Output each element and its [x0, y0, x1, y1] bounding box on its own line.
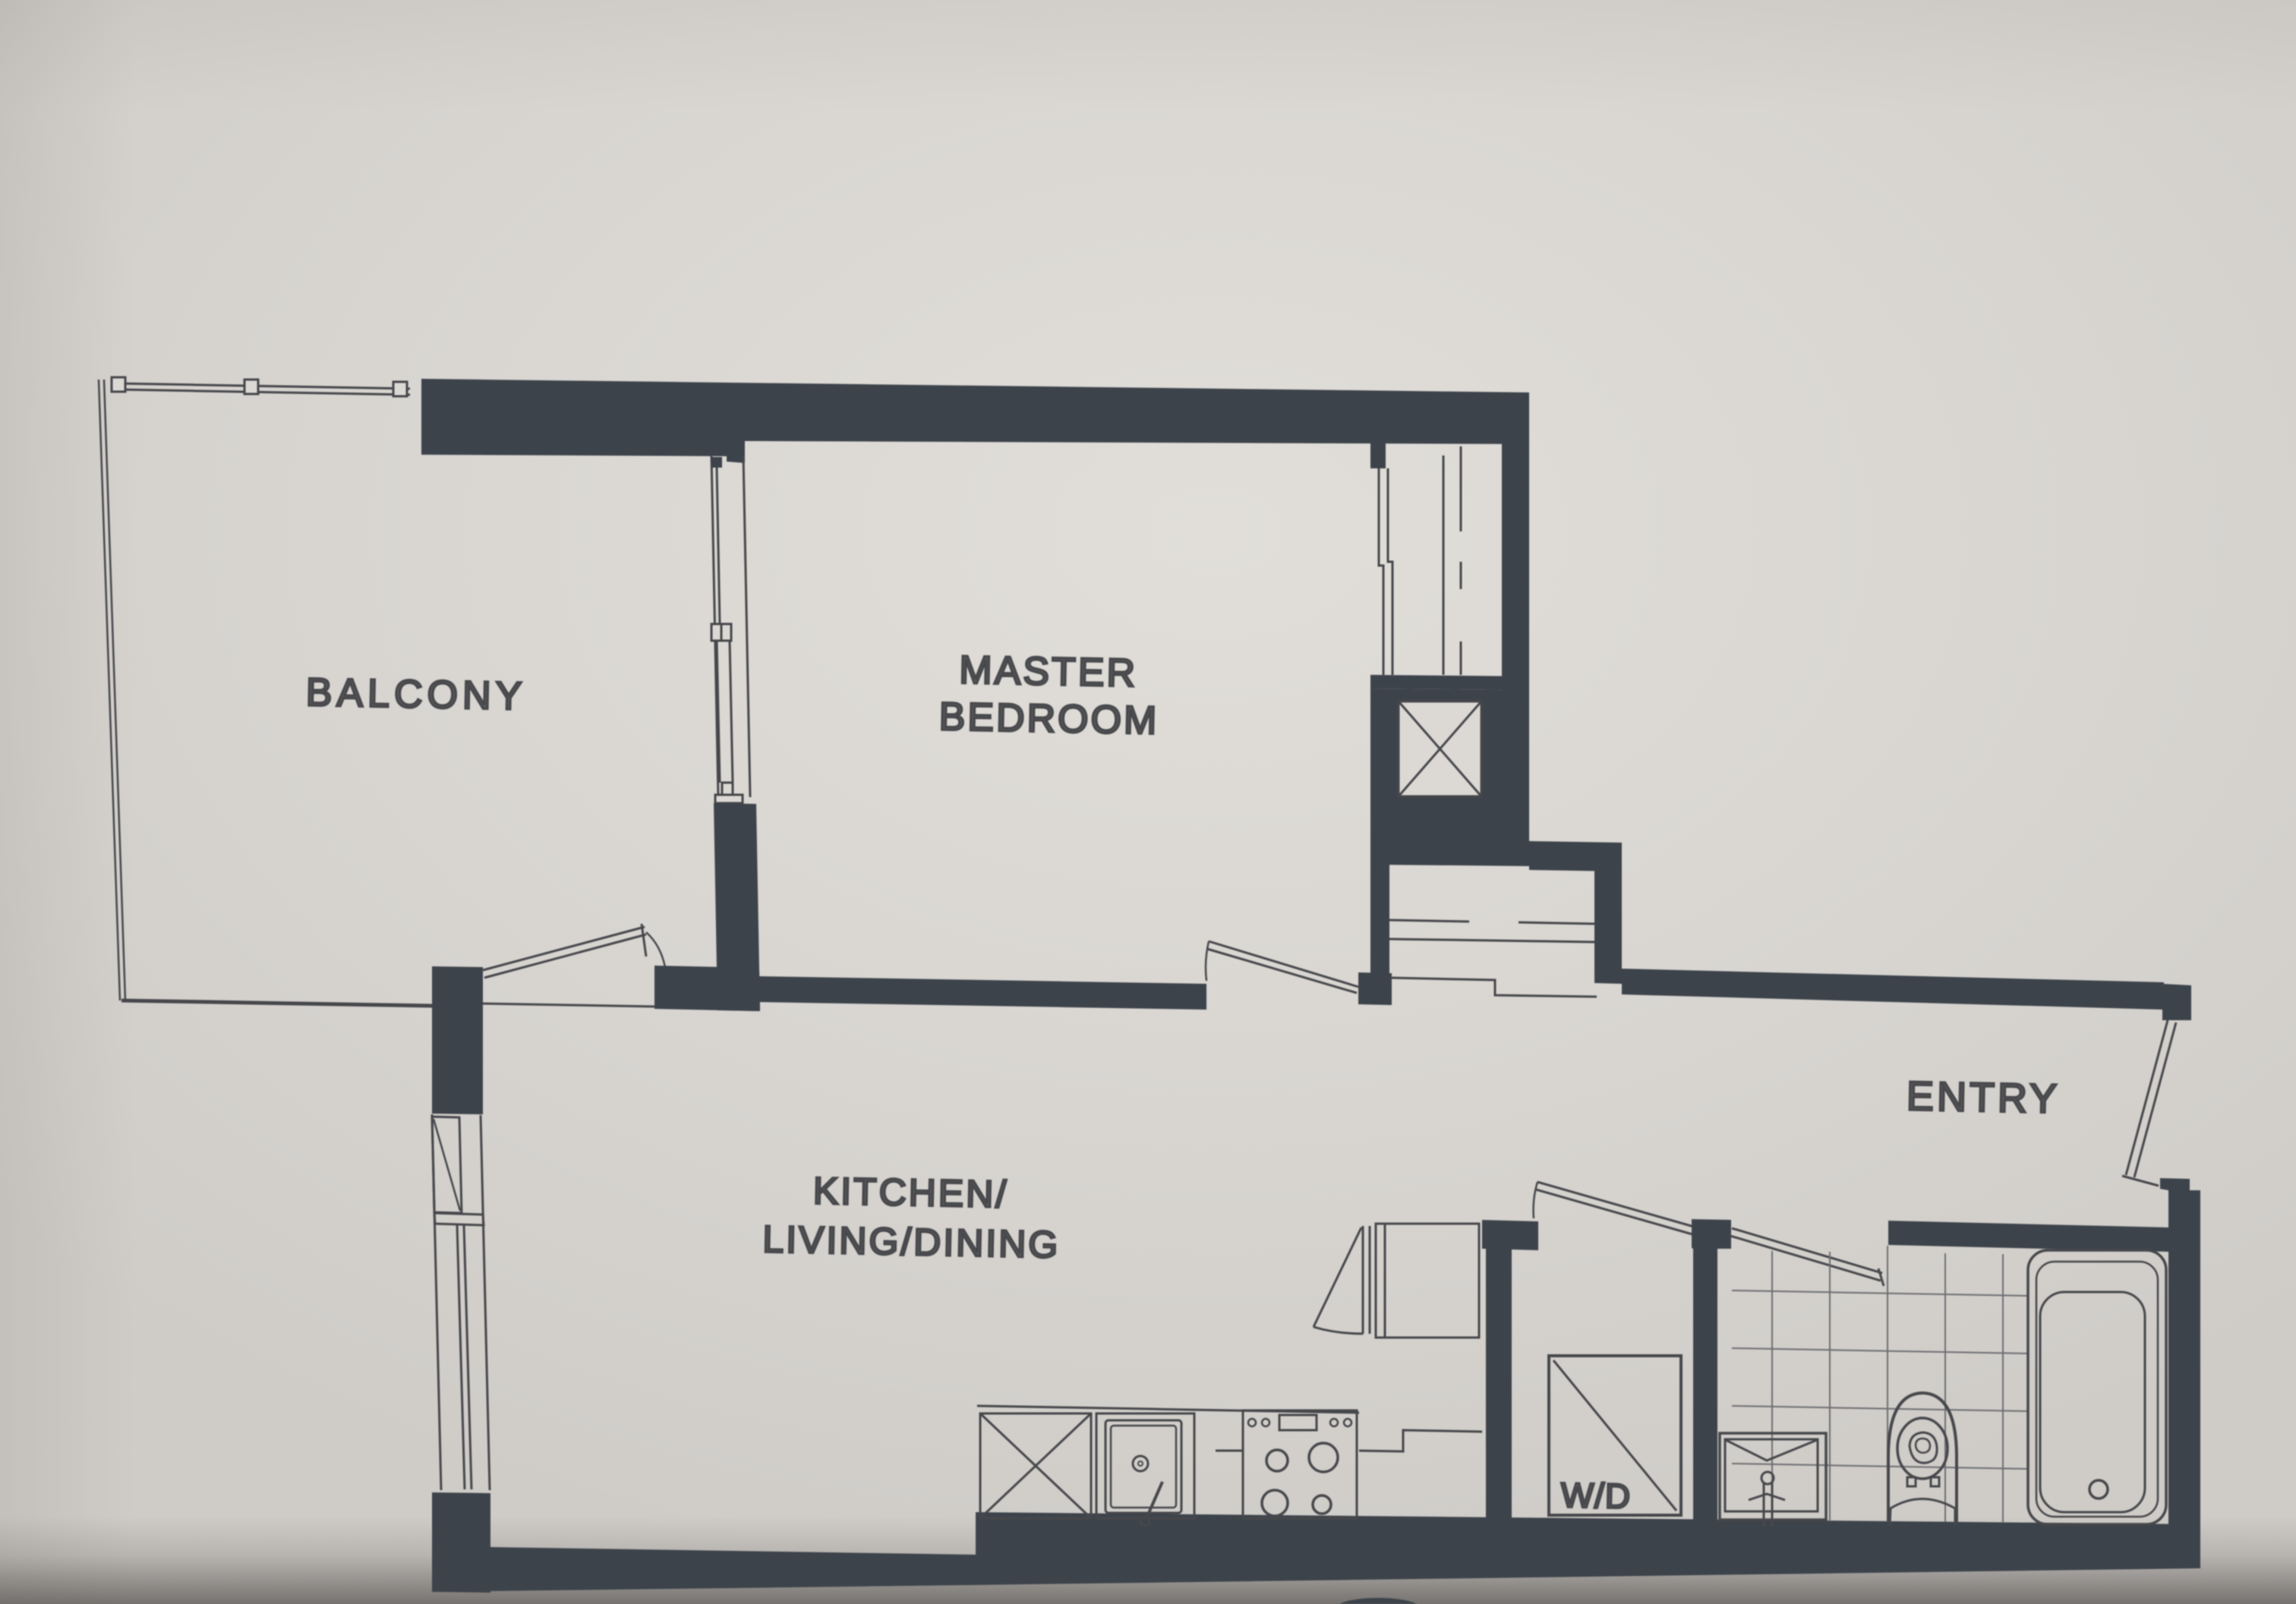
svg-text:KITCHEN/: KITCHEN/: [812, 1170, 1008, 1216]
svg-text:W/D: W/D: [1560, 1475, 1631, 1516]
svg-text:ENTRY: ENTRY: [1906, 1073, 2060, 1122]
svg-text:BALCONY: BALCONY: [305, 670, 527, 719]
svg-text:BEDROOM: BEDROOM: [938, 695, 1159, 743]
svg-text:MASTER: MASTER: [959, 648, 1138, 695]
svg-text:LIVING/DINING: LIVING/DINING: [762, 1218, 1061, 1266]
